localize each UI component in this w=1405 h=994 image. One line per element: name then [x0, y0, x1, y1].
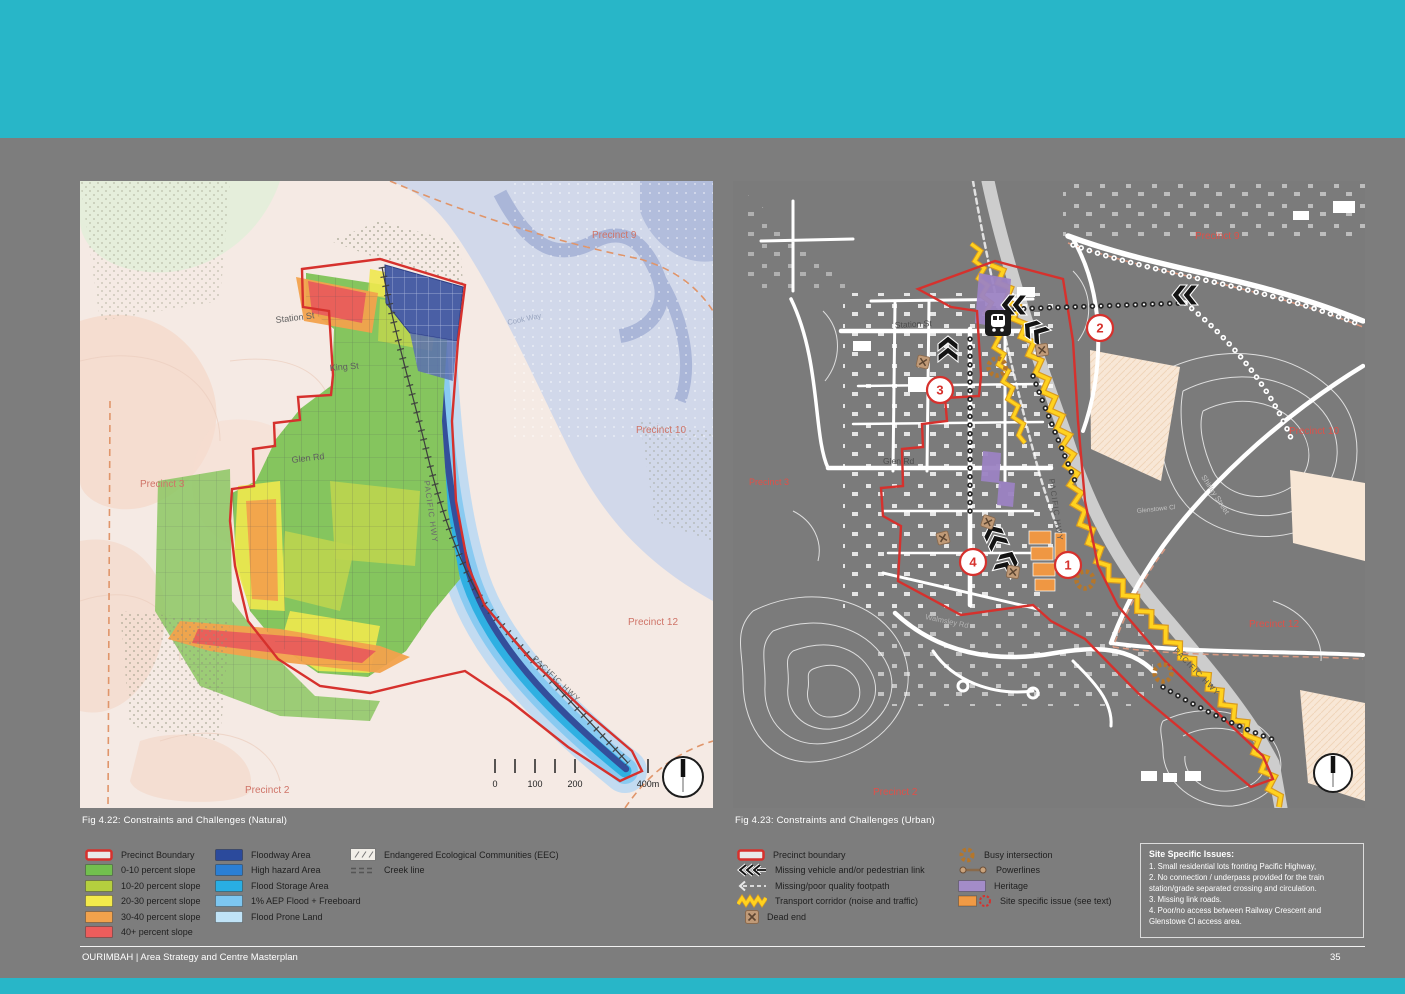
legend-item: Heritage: [958, 880, 1112, 891]
slope-swatch: [85, 895, 113, 907]
slope-swatch: [85, 880, 113, 892]
legend-item: Creek line: [350, 865, 559, 876]
legend-item: Transport corridor (noise and traffic): [737, 896, 925, 907]
legend-natural-col3: Endangered Ecological Communities (EEC) …: [350, 849, 559, 876]
north-arrow-icon: [1314, 754, 1352, 792]
issues-line: Glenstowe Cl access area.: [1149, 916, 1355, 927]
dead-end-icon: [1035, 343, 1049, 357]
svg-text:3: 3: [936, 383, 943, 398]
legend-label: Flood Prone Land: [251, 912, 323, 922]
slope-swatch: [85, 926, 113, 938]
document-page: Station St King St Glen Rd PACIFIC HWY P…: [0, 0, 1405, 994]
flood-swatch: [215, 880, 243, 892]
legend-item: Site specific issue (see text): [958, 896, 1112, 907]
scale-tick-label: 100: [527, 779, 542, 789]
legend-item: Flood Storage Area: [215, 880, 361, 891]
legend-item: Precinct boundary: [737, 849, 925, 860]
scale-tick-label: 200: [567, 779, 582, 789]
legend-item: High hazard Area: [215, 865, 361, 876]
dead-end-icon: [936, 531, 951, 546]
footer-divider: [80, 946, 1365, 947]
legend-label: Dead end: [767, 912, 806, 922]
dead-end-icon: [916, 355, 930, 369]
legend-item: Missing vehicle and/or pedestrian link: [737, 865, 925, 876]
creek-line-swatch: [350, 864, 376, 877]
legend-label: Precinct boundary: [773, 850, 846, 860]
legend-item: 20-30 percent slope: [85, 896, 201, 907]
legend-label: 40+ percent slope: [121, 927, 193, 937]
legend-item: 30-40 percent slope: [85, 911, 201, 922]
urban-constraints-map: Station St Glen Rd Walmsley Rd PACIFIC H…: [733, 181, 1365, 808]
legend-label: Transport corridor (noise and traffic): [775, 896, 918, 906]
powerlines-icon: [958, 863, 988, 877]
issues-line: 4. Poor/no access between Railway Cresce…: [1149, 905, 1355, 916]
legend-item: 0-10 percent slope: [85, 865, 201, 876]
legend-urban-col2: Busy intersection Powerlines Heritage Si…: [958, 849, 1112, 907]
legend-item: Flood Prone Land: [215, 911, 361, 922]
legend-label: Floodway Area: [251, 850, 311, 860]
legend-label: Precinct Boundary: [121, 850, 195, 860]
legend-natural-col1: Precinct Boundary 0-10 percent slope 10-…: [85, 849, 201, 938]
issues-line: station/grade separated crossing and cir…: [1149, 883, 1355, 894]
train-station-icon: [985, 310, 1011, 336]
legend-label: Endangered Ecological Communities (EEC): [384, 850, 559, 860]
precinct-label: Precinct 12: [628, 617, 678, 628]
missing-link-icon: [737, 863, 767, 877]
issues-line: 3. Missing link roads.: [1149, 894, 1355, 905]
flood-swatch: [215, 911, 243, 923]
legend-label: 10-20 percent slope: [121, 881, 201, 891]
dead-end-icon: [745, 910, 759, 924]
legend-item: 1% AEP Flood + Freeboard: [215, 896, 361, 907]
street-label: Station St: [895, 318, 933, 330]
svg-text:1: 1: [1064, 558, 1071, 573]
legend-urban-col1: Precinct boundary Missing vehicle and/or…: [737, 849, 925, 922]
precinct-label: Precinct 9: [1195, 231, 1240, 242]
legend-label: 20-30 percent slope: [121, 896, 201, 906]
north-arrow-icon: [663, 757, 703, 797]
site-specific-issues-box: Site Specific Issues: 1. Small residenti…: [1140, 843, 1364, 938]
legend-item: Endangered Ecological Communities (EEC): [350, 849, 559, 860]
figure-caption-right: Fig 4.23: Constraints and Challenges (Ur…: [735, 815, 935, 826]
legend-item: Dead end: [737, 911, 925, 922]
legend-item: 40+ percent slope: [85, 927, 201, 938]
legend-label: Missing/poor quality footpath: [775, 881, 890, 891]
legend-label: Powerlines: [996, 865, 1040, 875]
legend-label: Site specific issue (see text): [1000, 896, 1112, 906]
page-number: 35: [1330, 952, 1341, 963]
issues-line: 2. No connection / underpass provided fo…: [1149, 872, 1355, 883]
precinct-label: Precinct 12: [1249, 619, 1299, 630]
legend-item: 10-20 percent slope: [85, 880, 201, 891]
precinct-label: Precinct 10: [636, 425, 686, 436]
legend-label: Busy intersection: [984, 850, 1053, 860]
legend-label: 1% AEP Flood + Freeboard: [251, 896, 361, 906]
issues-line: 1. Small residential lots fronting Pacif…: [1149, 861, 1355, 872]
precinct-boundary-swatch: [85, 849, 113, 861]
issue-marker-3: 3: [927, 377, 953, 403]
legend-label: 30-40 percent slope: [121, 912, 201, 922]
legend-natural-col2: Floodway Area High hazard Area Flood Sto…: [215, 849, 361, 922]
precinct-label: Precinct 2: [245, 785, 290, 796]
busy-intersection-icon: [958, 847, 976, 863]
legend-item: Missing/poor quality footpath: [737, 880, 925, 891]
precinct-label: Precinct 3: [140, 479, 185, 490]
legend-label: Missing vehicle and/or pedestrian link: [775, 865, 925, 875]
legend-item: Precinct Boundary: [85, 849, 201, 860]
precinct-label: Precinct 3: [749, 477, 789, 487]
legend-item: Busy intersection: [958, 849, 1112, 860]
legend-label: High hazard Area: [251, 865, 321, 875]
header-band: [0, 0, 1405, 138]
flood-swatch: [215, 864, 243, 876]
svg-text:2: 2: [1096, 321, 1103, 336]
svg-text:4: 4: [969, 555, 977, 570]
slope-swatch: [85, 911, 113, 923]
legend-label: 0-10 percent slope: [121, 865, 196, 875]
scale-tick-label: 0: [492, 779, 497, 789]
issue-marker-2: 2: [1087, 315, 1113, 341]
precinct-label: Precinct 9: [592, 230, 637, 241]
flood-swatch: [215, 849, 243, 861]
legend-label: Flood Storage Area: [251, 881, 329, 891]
flood-swatch: [215, 895, 243, 907]
precinct-boundary-swatch: [737, 849, 765, 861]
eec-swatch: [350, 848, 376, 861]
precinct-label: Precinct 2: [873, 787, 918, 798]
legend-item: Floodway Area: [215, 849, 361, 860]
slope-swatch: [85, 864, 113, 876]
footer-band: [0, 978, 1405, 994]
legend-label: Heritage: [994, 881, 1028, 891]
legend-label: Creek line: [384, 865, 425, 875]
issues-title: Site Specific Issues:: [1149, 849, 1355, 859]
site-specific-issue-swatch: [958, 894, 992, 908]
missing-footpath-icon: [737, 879, 767, 893]
dead-end-icon: [1006, 565, 1020, 579]
issue-marker-4: 4: [960, 549, 986, 575]
legend-item: Powerlines: [958, 865, 1112, 876]
issue-marker-1: 1: [1055, 552, 1081, 578]
street-label: Glen Rd: [883, 456, 914, 466]
precinct-label: Precinct 10: [1289, 426, 1339, 437]
transport-corridor-icon: [737, 894, 767, 908]
natural-constraints-map: Station St King St Glen Rd PACIFIC HWY P…: [80, 181, 713, 808]
footer-brand: OURIMBAH | Area Strategy and Centre Mast…: [82, 952, 298, 963]
scale-tick-label: 400m: [637, 779, 660, 789]
heritage-swatch: [958, 880, 986, 892]
figure-caption-left: Fig 4.22: Constraints and Challenges (Na…: [82, 815, 287, 826]
